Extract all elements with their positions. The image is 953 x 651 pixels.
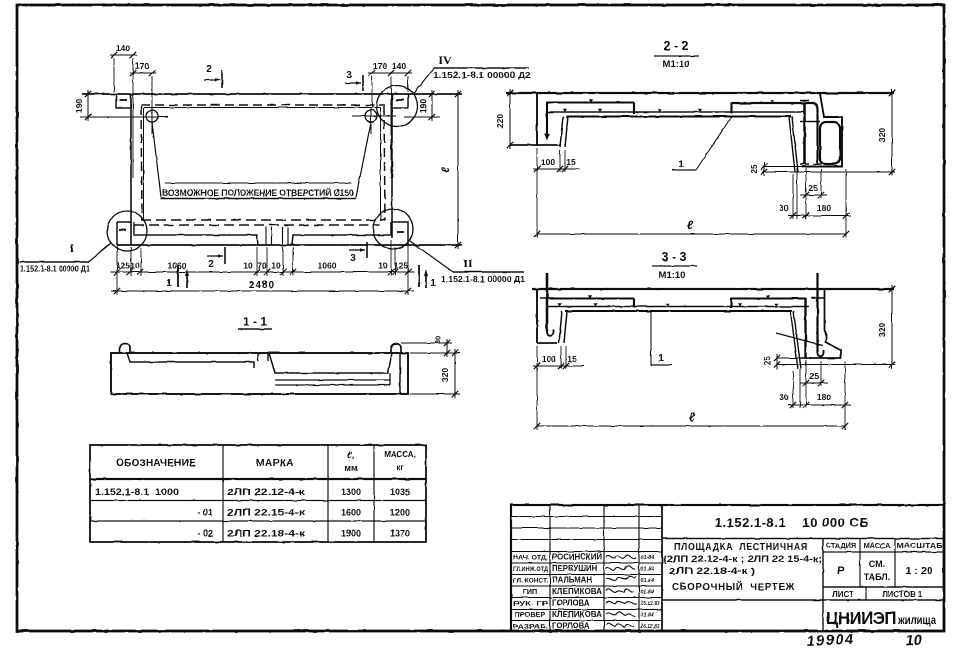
svg-text:1: 1	[166, 277, 172, 289]
svg-text:25: 25	[763, 356, 772, 365]
svg-text:10: 10	[271, 261, 281, 271]
svg-text:Р: Р	[837, 565, 844, 577]
svg-text:1300: 1300	[341, 487, 361, 497]
svg-text:01.84: 01.84	[641, 613, 655, 619]
svg-text:01.84: 01.84	[641, 578, 655, 584]
svg-text:15: 15	[567, 354, 577, 364]
svg-text:25: 25	[808, 183, 818, 193]
svg-text:320: 320	[877, 323, 887, 337]
svg-text:140: 140	[116, 43, 130, 53]
svg-text:1: 1	[678, 159, 684, 170]
svg-text:1: 1	[658, 353, 664, 364]
svg-text:170: 170	[135, 61, 149, 71]
svg-text:ℓ: ℓ	[440, 167, 452, 173]
svg-text:М1:10: М1:10	[659, 270, 686, 281]
svg-text:- 02: - 02	[197, 529, 213, 539]
svg-text:М1:10: М1:10	[663, 59, 690, 70]
svg-text:МАРКА: МАРКА	[256, 458, 294, 469]
svg-text:(2ЛП 22.12-4-к ; 2ЛП 22 15-4-к: (2ЛП 22.12-4-к ; 2ЛП 22 15-4-к;	[663, 554, 822, 564]
svg-text:ПЛОЩАДКА ЛЕСТНИЧНАЯ: ПЛОЩАДКА ЛЕСТНИЧНАЯ	[674, 542, 808, 553]
svg-text:70: 70	[257, 261, 267, 271]
svg-text:100: 100	[542, 354, 556, 364]
svg-text:ГОРЛОВА: ГОРЛОВА	[552, 599, 590, 608]
svg-text:01-84: 01-84	[641, 555, 655, 561]
svg-text:1060: 1060	[318, 261, 337, 271]
svg-text:01-84: 01-84	[641, 590, 655, 596]
svg-text:2ЛП 22.12-4-к: 2ЛП 22.12-4-к	[227, 487, 306, 497]
svg-text:2ЛП 22.18-4-к: 2ЛП 22.18-4-к	[227, 529, 306, 539]
svg-text:19904: 19904	[806, 632, 855, 650]
svg-text:25: 25	[809, 371, 819, 381]
svg-text:190: 190	[418, 99, 428, 113]
svg-text:2: 2	[208, 259, 214, 270]
svg-text:ЦНИИЭП: ЦНИИЭП	[826, 608, 896, 628]
svg-text:3 - 3: 3 - 3	[661, 250, 686, 264]
svg-text:01.84: 01.84	[641, 567, 655, 573]
svg-text:180: 180	[817, 392, 831, 402]
svg-text:МАСШТАБ: МАСШТАБ	[897, 541, 943, 550]
svg-text:1: 1	[430, 277, 436, 289]
svg-text:МАССА: МАССА	[864, 541, 892, 550]
svg-text:320: 320	[877, 128, 887, 142]
svg-text:25: 25	[750, 164, 759, 173]
svg-text:МАССА,: МАССА,	[384, 450, 416, 459]
svg-text:II: II	[463, 256, 473, 270]
svg-text:125: 125	[116, 261, 130, 271]
svg-text:ОБОЗНАЧЕНИЕ: ОБОЗНАЧЕНИЕ	[116, 458, 196, 469]
svg-text:10: 10	[905, 633, 922, 650]
svg-text:26.12.83: 26.12.83	[640, 624, 660, 630]
svg-text:РУК. ГР: РУК. ГР	[513, 601, 549, 608]
svg-text:3: 3	[350, 253, 356, 264]
svg-text:30: 30	[779, 203, 789, 213]
svg-text:125: 125	[394, 261, 408, 271]
svg-text:320: 320	[440, 368, 450, 382]
svg-text:ГЛ. КОНСТ.: ГЛ. КОНСТ.	[513, 578, 548, 585]
svg-text:2ЛП 22.18-4-к ): 2ЛП 22.18-4-к )	[669, 566, 755, 576]
svg-text:ГИП: ГИП	[523, 587, 537, 596]
svg-text:ЛИСТ: ЛИСТ	[832, 590, 854, 599]
svg-text:I: I	[70, 241, 75, 255]
svg-text:НАЧ. ОТД.: НАЧ. ОТД.	[513, 555, 548, 562]
svg-text:1.152.1-8.1 10 000 СБ: 1.152.1-8.1 10 000 СБ	[715, 515, 869, 530]
svg-text:1370: 1370	[390, 529, 410, 539]
svg-text:ПРОВЕР: ПРОВЕР	[515, 610, 545, 619]
svg-text:2 - 2: 2 - 2	[663, 39, 688, 53]
svg-text:3: 3	[346, 70, 352, 81]
svg-text:1900: 1900	[341, 529, 361, 539]
svg-text:ПАЛЬМАН: ПАЛЬМАН	[552, 576, 592, 585]
svg-text:ℓ: ℓ	[687, 218, 694, 232]
svg-text:15: 15	[566, 157, 576, 167]
svg-text:ℓ: ℓ	[689, 410, 696, 424]
svg-text:жилища: жилища	[897, 615, 936, 627]
svg-text:мм: мм	[344, 463, 358, 473]
svg-text:ТАБЛ.: ТАБЛ.	[864, 572, 891, 582]
svg-text:140: 140	[392, 61, 406, 71]
svg-text:190: 190	[74, 99, 84, 113]
svg-text:2ЛП 22.15-4-к: 2ЛП 22.15-4-к	[227, 508, 306, 518]
svg-text:1200: 1200	[390, 508, 410, 518]
svg-text:180: 180	[817, 203, 831, 213]
svg-text:10: 10	[243, 261, 253, 271]
svg-text:ВОЗМОЖНОЕ ПОЛОЖЕНИЕ ОТВЕРСТИЙ: ВОЗМОЖНОЕ ПОЛОЖЕНИЕ ОТВЕРСТИЙ Ø150	[162, 187, 354, 198]
svg-text:1.152.1-8.1 1000: 1.152.1-8.1 1000	[95, 487, 179, 497]
svg-text:170: 170	[373, 61, 387, 71]
svg-text:СБОРОЧНЫЙ ЧЕРТЕЖ: СБОРОЧНЫЙ ЧЕРТЕЖ	[672, 580, 795, 593]
svg-text:КЛЕПИКОВА: КЛЕПИКОВА	[552, 610, 602, 619]
svg-text:1035: 1035	[390, 487, 410, 497]
svg-text:СМ.: СМ.	[869, 559, 885, 569]
svg-text:1 - 1: 1 - 1	[243, 315, 267, 329]
svg-text:ℓ,: ℓ,	[347, 450, 354, 460]
svg-text:1600: 1600	[341, 508, 361, 518]
svg-text:1.152.1-8.1 00000 Д1: 1.152.1-8.1 00000 Д1	[441, 275, 526, 284]
svg-text:1 : 20: 1 : 20	[906, 565, 933, 577]
svg-text:РОСИНСКИЙ: РОСИНСКИЙ	[552, 553, 602, 562]
svg-text:- 01: - 01	[197, 508, 213, 518]
svg-text:IV: IV	[438, 53, 452, 67]
svg-text:15.12.83: 15.12.83	[641, 601, 660, 607]
svg-text:10: 10	[378, 261, 388, 271]
svg-text:1.152.1-8.1 00000 Д1: 1.152.1-8.1 00000 Д1	[20, 265, 90, 274]
svg-text:100: 100	[541, 157, 555, 167]
svg-text:СТАДИЯ: СТАДИЯ	[826, 541, 856, 550]
svg-text:ЛИСТОВ 1: ЛИСТОВ 1	[882, 590, 923, 599]
svg-text:ГЛ.ИНЖ.ОТД: ГЛ.ИНЖ.ОТД	[513, 566, 548, 573]
svg-text:КЛЕПИКОВА: КЛЕПИКОВА	[552, 587, 602, 596]
svg-text:кг: кг	[396, 463, 404, 472]
svg-text:1.152.1-8.1 00000 Д2: 1.152.1-8.1 00000 Д2	[433, 71, 532, 80]
svg-text:РАЗРАБ.: РАЗРАБ.	[513, 624, 548, 631]
svg-text:30: 30	[779, 392, 789, 402]
svg-text:10: 10	[130, 261, 140, 271]
svg-text:2480: 2480	[249, 280, 275, 291]
svg-text:2: 2	[206, 64, 212, 75]
svg-text:220: 220	[495, 114, 505, 128]
svg-text:ПЕРВУШИН: ПЕРВУШИН	[552, 564, 598, 573]
svg-text:ГОРЛОВА: ГОРЛОВА	[552, 622, 590, 631]
